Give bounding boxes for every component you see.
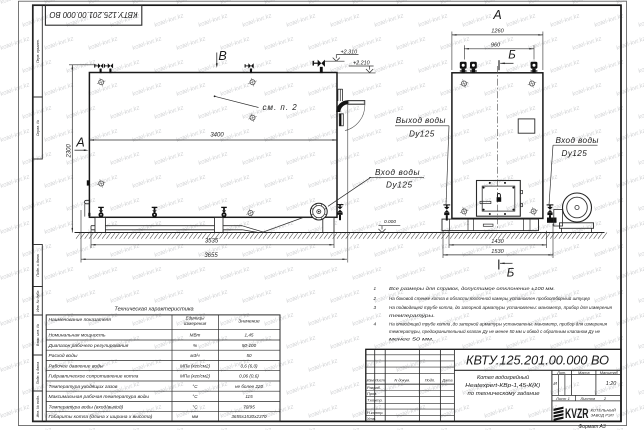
svg-text:Масса: Масса <box>578 370 590 375</box>
svg-text:115: 115 <box>245 394 253 399</box>
svg-text:Разраб.: Разраб. <box>367 385 381 390</box>
svg-text:Т.контр.: Т.контр. <box>367 398 383 403</box>
svg-text:Вход воды: Вход воды <box>375 168 420 177</box>
svg-text:°С: °С <box>192 394 198 399</box>
svg-text:Dy125: Dy125 <box>409 130 435 139</box>
svg-text:70/95: 70/95 <box>243 404 255 409</box>
svg-text:N докум.: N докум. <box>394 378 410 383</box>
svg-text:°С: °С <box>192 384 198 389</box>
svg-text:температуры, предохранительный: температуры, предохранительный клапан Ду… <box>389 328 600 334</box>
svg-text:Heatexpert-КВр-1,45-К(К): Heatexpert-КВр-1,45-К(К) <box>465 383 540 389</box>
svg-text:1,45: 1,45 <box>245 333 254 338</box>
svg-text:см. п. 2: см. п. 2 <box>263 103 298 112</box>
svg-text:Взам. инв. №: Взам. инв. № <box>36 324 40 346</box>
svg-text:0.000: 0.000 <box>384 219 396 225</box>
svg-text:Лист: Лист <box>374 378 386 383</box>
svg-text:МПа (кгс/см2): МПа (кгс/см2) <box>180 374 210 379</box>
svg-text:Формат А3: Формат А3 <box>578 424 606 430</box>
svg-text:В: В <box>218 49 226 63</box>
svg-text:Вход воды: Вход воды <box>556 136 599 145</box>
svg-text:Лист: Лист <box>555 396 567 401</box>
svg-text:Перв. примен.: Перв. примен. <box>36 39 40 63</box>
svg-text:Справ. №: Справ. № <box>36 120 40 136</box>
svg-text:1530: 1530 <box>491 249 504 255</box>
svg-text:Единицы: Единицы <box>186 316 206 321</box>
svg-text:KVZR: KVZR <box>565 406 589 421</box>
svg-text:Максимальная рабочая температу: Максимальная рабочая температура воды <box>49 394 150 400</box>
svg-text:Изм: Изм <box>367 378 375 383</box>
svg-text:Листов: Листов <box>580 396 596 401</box>
svg-text:3400: 3400 <box>210 133 224 139</box>
svg-text:КОТЕЛЬНЫЙ: КОТЕЛЬНЫЙ <box>591 407 616 412</box>
svg-text:не более 220: не более 220 <box>235 384 263 389</box>
svg-text:менее 50 мм.: менее 50 мм. <box>389 337 434 342</box>
svg-text:50-100: 50-100 <box>242 343 257 348</box>
svg-text:Расход воды: Расход воды <box>49 353 78 359</box>
svg-text:Утв.: Утв. <box>367 416 376 421</box>
svg-text:по техническому задание: по техническому задание <box>468 391 540 397</box>
svg-text:ЗАВОД РЭП: ЗАВОД РЭП <box>591 413 614 418</box>
svg-text:+2.310: +2.310 <box>341 49 358 55</box>
svg-text:Котел водогрейный: Котел водогрейный <box>477 374 529 381</box>
svg-text:Рабочее давление воды: Рабочее давление воды <box>49 363 104 369</box>
svg-text:Подп. и дата: Подп. и дата <box>36 254 40 277</box>
svg-text:измерения: измерения <box>184 321 207 326</box>
svg-text:А: А <box>75 136 84 150</box>
svg-text:Температура уходящих газов: Температура уходящих газов <box>49 384 118 390</box>
svg-text:А: А <box>492 8 501 22</box>
svg-text:960: 960 <box>491 43 501 49</box>
svg-text:МВт: МВт <box>190 333 201 338</box>
svg-text:Н.контр.: Н.контр. <box>367 410 383 415</box>
svg-text:+2.210: +2.210 <box>353 61 370 67</box>
svg-text:Пров.: Пров. <box>367 391 377 396</box>
svg-text:4: 4 <box>374 321 377 326</box>
svg-text:1: 1 <box>568 396 570 401</box>
svg-text:0,06 (0,6): 0,06 (0,6) <box>239 374 259 379</box>
svg-text:Dy125: Dy125 <box>562 149 588 158</box>
svg-text:температуры.: температуры. <box>389 313 435 318</box>
svg-text:Масштаб: Масштаб <box>600 370 619 375</box>
svg-text:3: 3 <box>374 305 377 310</box>
svg-text:Подп.: Подп. <box>425 378 435 383</box>
svg-text:%: % <box>193 343 197 348</box>
svg-text:Температура воды (вход/выход): Температура воды (вход/выход) <box>49 404 124 410</box>
svg-text:Диапазон рабочего регулировани: Диапазон рабочего регулирования <box>48 343 129 349</box>
svg-text:Габариты котла (длина х ширина: Габариты котла (длина х ширина х высота) <box>49 414 153 420</box>
svg-text:1:20: 1:20 <box>606 381 617 387</box>
svg-text:0,6 (6,0): 0,6 (6,0) <box>240 363 258 368</box>
svg-text:КВТУ.125.201.00.000 ВО: КВТУ.125.201.00.000 ВО <box>49 10 138 19</box>
svg-text:Б: Б <box>508 50 516 62</box>
svg-text:Подп. и дата: Подп. и дата <box>36 362 40 385</box>
svg-text:И: И <box>553 381 557 387</box>
svg-text:Лит.: Лит. <box>556 370 566 375</box>
svg-text:3655х1530х2370: 3655х1530х2370 <box>231 414 267 419</box>
svg-text:°С: °С <box>192 404 198 409</box>
svg-text:3535: 3535 <box>205 239 219 245</box>
svg-text:1260: 1260 <box>491 29 504 35</box>
svg-text:Номинальная мощность: Номинальная мощность <box>49 333 107 339</box>
svg-text:На отводящей трубе котла ,до з: На отводящей трубе котла ,до запорной ар… <box>389 320 608 326</box>
svg-text:Инв. № подл.: Инв. № подл. <box>36 395 40 417</box>
svg-text:МПа (кгс/см2): МПа (кгс/см2) <box>180 363 210 368</box>
svg-text:Техническая характеристика: Техническая характеристика <box>114 306 193 312</box>
svg-text:Все размеры для справок, допус: Все размеры для справок, допустимое откл… <box>389 286 555 291</box>
svg-text:На подводящей трубе котла, д: На подводящей трубе котла, до запорной а… <box>389 304 613 310</box>
svg-text:1430: 1430 <box>491 239 504 245</box>
svg-text:2300: 2300 <box>67 143 73 158</box>
svg-text:3655: 3655 <box>204 253 218 259</box>
svg-text:1: 1 <box>374 286 377 291</box>
svg-text:Значение: Значение <box>238 319 260 325</box>
svg-text:50: 50 <box>246 353 252 358</box>
svg-text:КВТУ.125.201.00.000 ВО: КВТУ.125.201.00.000 ВО <box>466 352 609 367</box>
svg-text:Выход воды: Выход воды <box>396 116 446 125</box>
svg-text:мм: мм <box>192 414 199 419</box>
svg-text:м3/ч: м3/ч <box>190 353 200 358</box>
svg-text:На боковой стенке котла в обла: На боковой стенке котла в области топочн… <box>389 295 590 301</box>
svg-text:Б: Б <box>507 268 515 280</box>
svg-text:Инв. № дубл.: Инв. № дубл. <box>36 290 40 312</box>
svg-text:Дата: Дата <box>441 378 453 383</box>
svg-text:Гидравлическое сопротивление к: Гидравлическое сопротивление котла <box>49 374 139 380</box>
svg-text:Dy125: Dy125 <box>386 180 413 189</box>
svg-text:2: 2 <box>373 296 377 301</box>
svg-text:Наименование показателя: Наименование показателя <box>49 317 112 323</box>
